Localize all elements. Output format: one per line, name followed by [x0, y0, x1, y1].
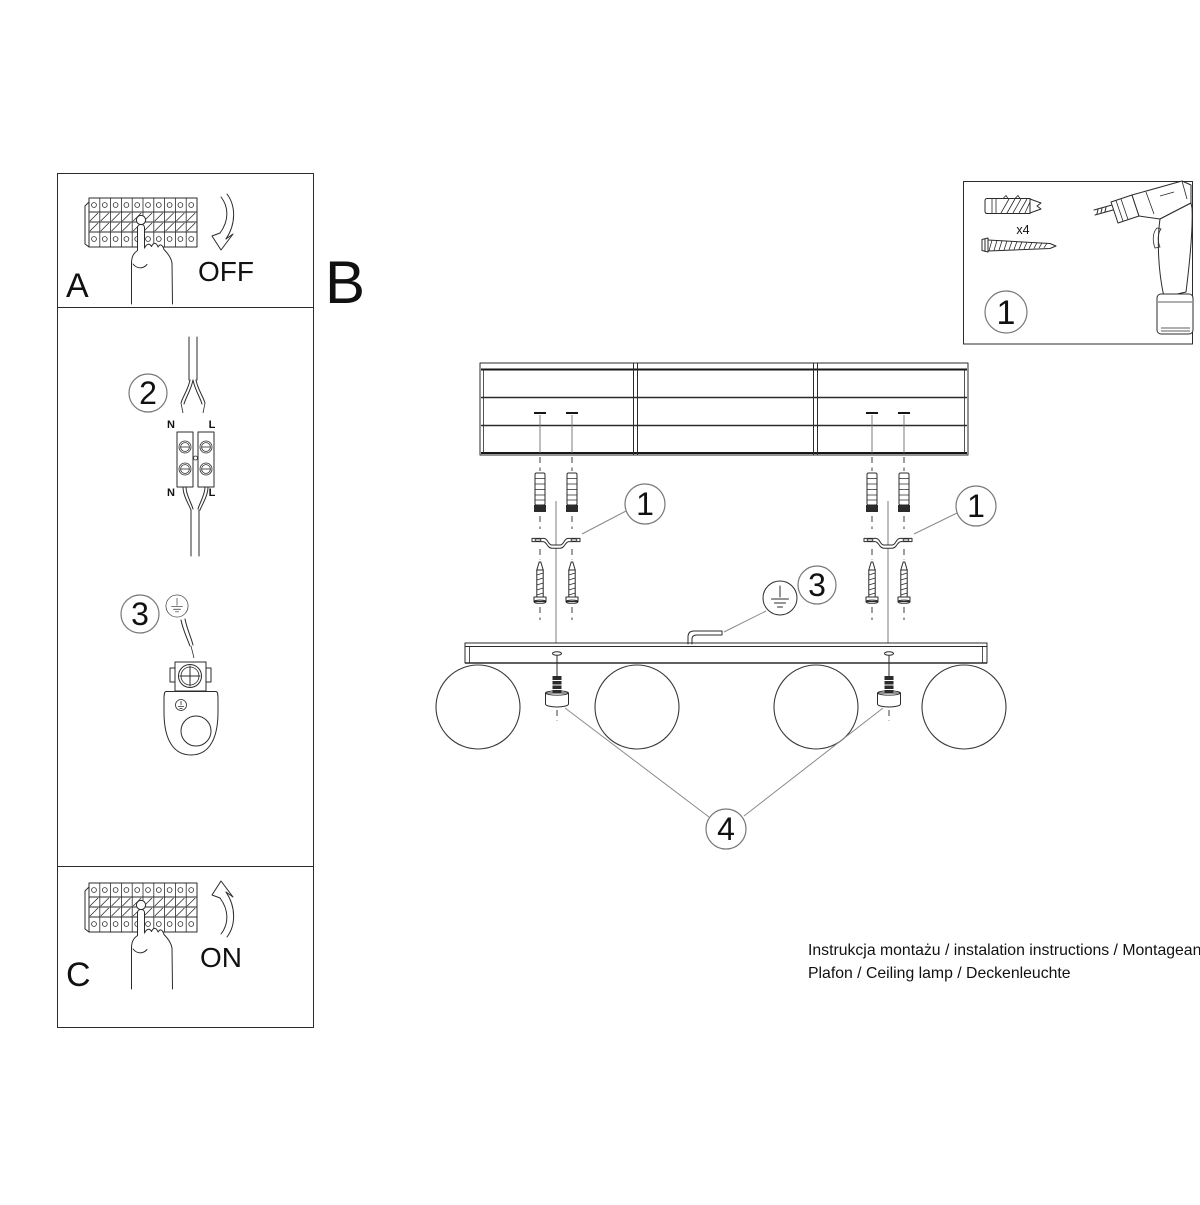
tools-number: 1	[997, 294, 1016, 332]
terminal-block	[177, 432, 214, 487]
left-column	[58, 174, 314, 1028]
callout-1-left: 1	[636, 486, 654, 522]
label-n-top: N	[167, 419, 175, 431]
ground-hook-wire	[688, 631, 722, 644]
step2-number: 2	[139, 375, 157, 411]
drill-icon	[1094, 181, 1193, 334]
wires-top	[181, 380, 205, 404]
wires-bottom	[183, 487, 208, 510]
instruction-sheet: { "colors": {"line": "#2b2b2b", "leader"…	[0, 0, 1200, 1200]
step2-wiring: 2 N L N L	[129, 337, 216, 556]
cable-bottom	[191, 510, 199, 556]
screw-h-icon	[982, 238, 1056, 252]
middle-steps-frame	[58, 308, 314, 867]
label-off: OFF	[198, 256, 254, 287]
installation-diagram: A OFF B 2 N L N L 3	[0, 0, 1200, 1200]
box-a: A OFF	[66, 194, 254, 305]
globe-4	[922, 665, 1006, 749]
wire-tips-top	[181, 403, 205, 413]
ground-connector	[164, 662, 218, 755]
bar-screw-right	[885, 652, 894, 656]
ground-wire	[181, 619, 193, 646]
tools-box: x4 1	[964, 181, 1194, 344]
on-arrow-icon	[212, 881, 234, 937]
lamp-bar	[465, 631, 987, 663]
step3-ground: 3	[121, 595, 218, 755]
bolt-left	[546, 656, 569, 721]
callout-3: 3	[808, 567, 826, 603]
footer-line2: Plafon / Ceiling lamp / Deckenleuchte	[808, 965, 1071, 982]
callout-4: 4	[717, 811, 735, 847]
globe-2	[595, 665, 679, 749]
mount-assembly-right	[864, 413, 912, 643]
section-label-b: B	[325, 249, 365, 316]
footer: Instrukcja montażu / instalation instruc…	[808, 942, 1200, 982]
bar-screw-left	[553, 652, 562, 656]
globe-3	[774, 665, 858, 749]
wall-plug-h-icon	[985, 196, 1041, 214]
earth-symbol-small	[166, 595, 188, 617]
off-arrow-icon	[212, 194, 234, 250]
callout-1-right: 1	[967, 488, 985, 524]
footer-line1: Instrukcja montażu / instalation instruc…	[808, 942, 1200, 959]
label-a: A	[66, 267, 89, 305]
label-on: ON	[200, 942, 242, 973]
label-l-top: L	[209, 419, 216, 431]
leader-lines	[565, 511, 957, 817]
box-c: C ON	[66, 881, 242, 994]
label-c: C	[66, 956, 91, 994]
globe-1	[436, 665, 520, 749]
anchor-count: x4	[1016, 223, 1029, 237]
ceiling	[480, 363, 968, 455]
step3-number: 3	[131, 596, 149, 632]
bolt-right	[878, 656, 901, 721]
mount-assembly-left	[532, 413, 580, 643]
earth-symbol-main	[763, 581, 797, 615]
cable-top	[189, 337, 197, 380]
label-n-bottom: N	[167, 487, 175, 499]
label-l-bottom: L	[209, 487, 216, 499]
